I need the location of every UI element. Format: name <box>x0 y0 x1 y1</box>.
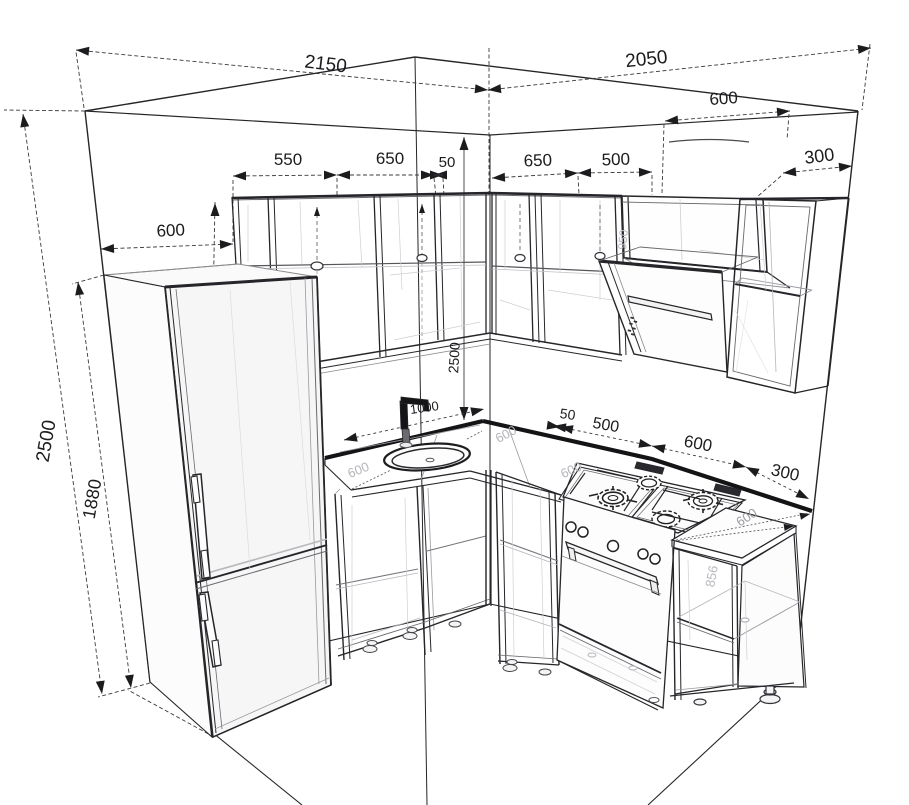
svg-text:50: 50 <box>559 405 577 423</box>
svg-text:500: 500 <box>601 150 630 170</box>
svg-text:600: 600 <box>156 220 185 240</box>
svg-text:300: 300 <box>803 144 835 168</box>
svg-text:550: 550 <box>274 150 302 169</box>
svg-text:600: 600 <box>709 88 739 109</box>
svg-text:950: 950 <box>615 229 631 250</box>
svg-text:50: 50 <box>439 154 456 171</box>
svg-text:650: 650 <box>523 151 552 171</box>
svg-text:650: 650 <box>376 149 404 168</box>
svg-text:2050: 2050 <box>624 47 668 72</box>
